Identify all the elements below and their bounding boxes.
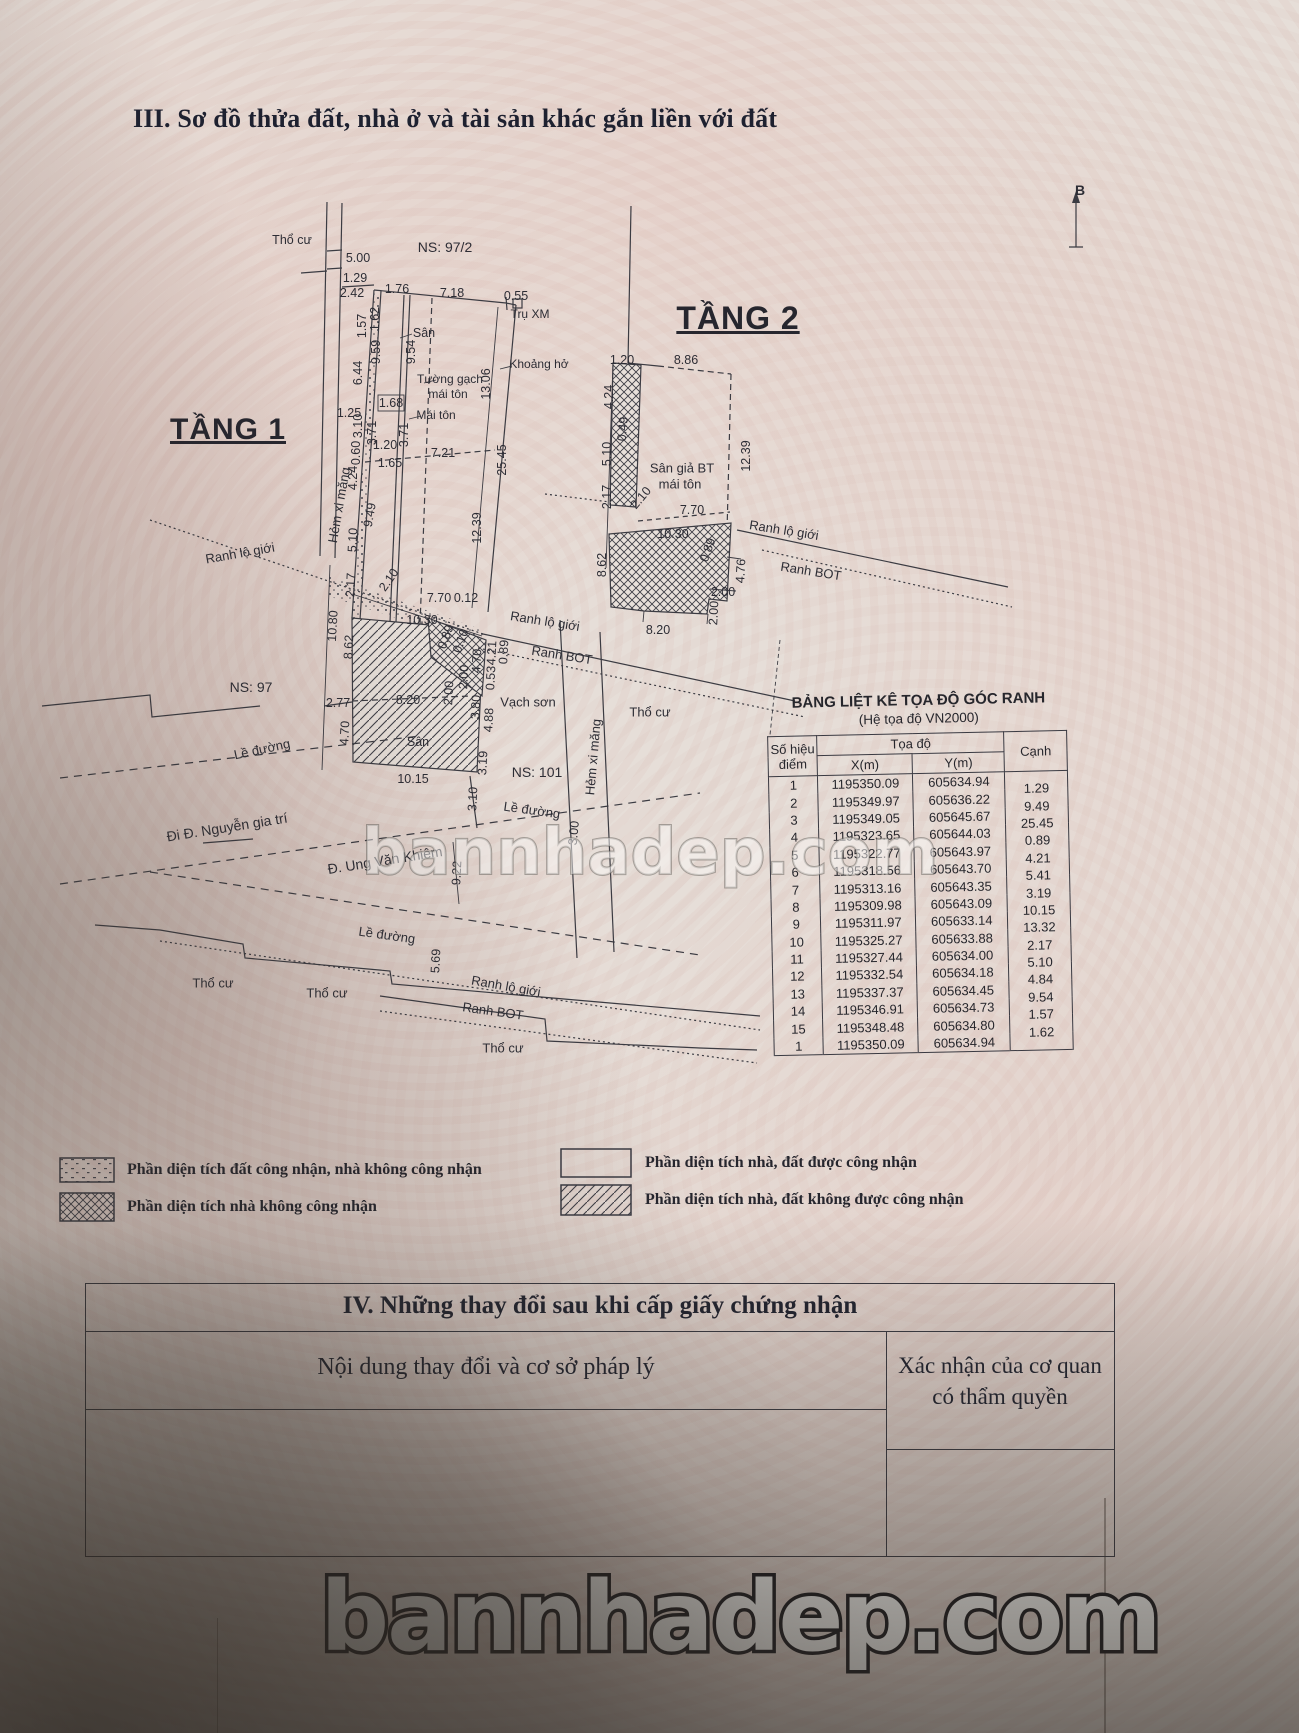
legend-label: Phần diện tích nhà không công nhận xyxy=(127,1198,377,1216)
legend-item: Phần diện tích nhà, đất được công nhận xyxy=(560,1148,1125,1178)
legend-item: Phần diện tích đất công nhận, nhà không … xyxy=(59,1157,607,1183)
divider-line xyxy=(86,1331,1114,1332)
divider-line xyxy=(86,1409,886,1410)
legend-swatch-speckle xyxy=(59,1157,115,1183)
section4-box: IV. Những thay đổi sau khi cấp giấy chứn… xyxy=(85,1283,1115,1557)
legend-item: Phần diện tích nhà, đất không được công … xyxy=(560,1184,1125,1216)
legend-swatch-plain xyxy=(560,1148,632,1178)
legend-label: Phần diện tích nhà, đất được công nhận xyxy=(645,1154,917,1172)
section4-left-header: Nội dung thay đổi và cơ sở pháp lý xyxy=(86,1354,886,1381)
column-divider xyxy=(886,1331,887,1556)
legend-label: Phần diện tích nhà, đất không được công … xyxy=(645,1191,964,1209)
legend-item: Phần diện tích nhà không công nhận xyxy=(59,1192,607,1222)
section4-title: IV. Những thay đổi sau khi cấp giấy chứn… xyxy=(86,1292,1114,1320)
legend-swatch-xhatch xyxy=(59,1192,115,1222)
legend-label: Phần diện tích đất công nhận, nhà không … xyxy=(127,1161,482,1179)
divider-line xyxy=(887,1449,1114,1450)
section4-right-header: Xác nhận của cơ quan có thẩm quyền xyxy=(888,1350,1112,1412)
legend-swatch-dhatch xyxy=(560,1184,632,1216)
